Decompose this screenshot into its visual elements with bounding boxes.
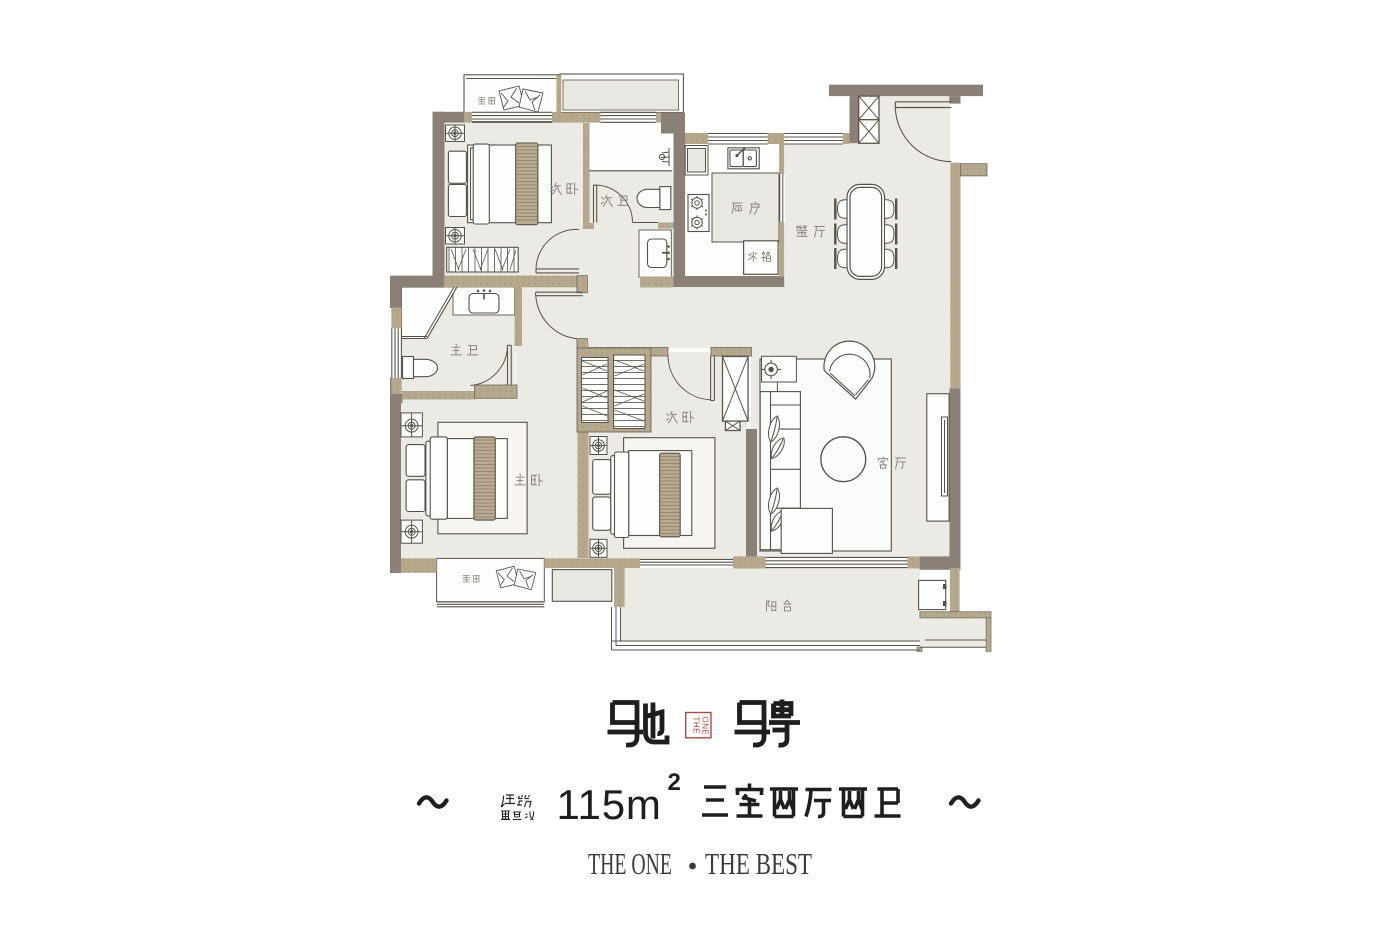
svg-text:THE ONE: THE ONE — [588, 846, 672, 881]
svg-text:115m: 115m — [557, 781, 662, 828]
svg-text:THE: THE — [692, 717, 701, 735]
svg-text:THE BEST: THE BEST — [705, 846, 812, 881]
svg-text:ONE: ONE — [701, 717, 710, 736]
svg-text:2: 2 — [668, 769, 681, 796]
